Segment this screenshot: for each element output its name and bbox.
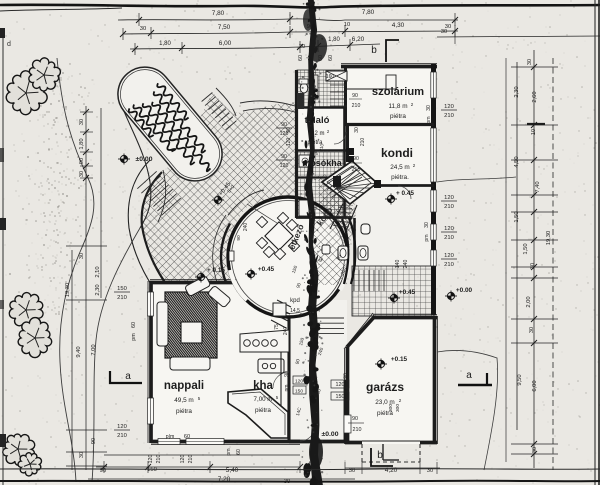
- svg-text:30: 30: [424, 222, 430, 228]
- svg-text:210: 210: [352, 103, 361, 109]
- svg-text:120: 120: [295, 379, 303, 385]
- svg-text:6,20: 6,20: [352, 36, 365, 43]
- svg-text:120: 120: [444, 104, 454, 110]
- svg-text:+ 0.15: + 0.15: [207, 267, 225, 274]
- svg-text:pm: pm: [426, 116, 432, 123]
- svg-text:2,60: 2,60: [532, 91, 538, 102]
- svg-text:2,30: 2,30: [95, 284, 101, 295]
- svg-text:d: d: [7, 41, 11, 48]
- svg-text:+0.45: +0.45: [258, 266, 275, 273]
- svg-text:5,40: 5,40: [226, 467, 239, 474]
- svg-text:160: 160: [326, 74, 335, 80]
- svg-text:150: 150: [295, 389, 303, 395]
- svg-text:210: 210: [360, 138, 366, 147]
- svg-text:7,00 m: 7,00 m: [254, 396, 273, 403]
- svg-text:pm: pm: [424, 234, 430, 241]
- svg-text:nappali: nappali: [164, 380, 204, 392]
- svg-text:30: 30: [527, 59, 533, 65]
- svg-text:b: b: [371, 45, 377, 56]
- svg-text:30: 30: [79, 119, 85, 125]
- svg-text:szolárium: szolárium: [372, 86, 424, 98]
- svg-text:30: 30: [79, 253, 85, 259]
- svg-text:19,30: 19,30: [65, 283, 71, 298]
- svg-text:210: 210: [444, 262, 454, 268]
- svg-text:pm: pm: [131, 333, 137, 341]
- svg-text:±0.00: ±0.00: [136, 156, 153, 163]
- svg-text:1,50: 1,50: [523, 243, 529, 254]
- svg-text:pm: pm: [284, 385, 290, 392]
- svg-text:7,80: 7,80: [212, 10, 225, 17]
- svg-text:300: 300: [395, 404, 401, 412]
- svg-text:90: 90: [236, 235, 242, 241]
- svg-text:75: 75: [274, 324, 280, 330]
- svg-text:10: 10: [531, 129, 537, 135]
- svg-text:120: 120: [444, 195, 454, 201]
- svg-text:120: 120: [444, 253, 454, 259]
- svg-text:9,40: 9,40: [76, 346, 82, 357]
- svg-text:2,00: 2,00: [526, 296, 532, 307]
- svg-text:30: 30: [530, 263, 536, 269]
- svg-text:2,10: 2,10: [95, 266, 101, 277]
- svg-text:30: 30: [79, 452, 85, 458]
- svg-text:1,80: 1,80: [159, 41, 171, 47]
- svg-text:90: 90: [343, 373, 349, 379]
- svg-text:1,80: 1,80: [328, 37, 340, 43]
- svg-text:30: 30: [529, 327, 535, 333]
- svg-text:90: 90: [281, 122, 287, 128]
- svg-text:215: 215: [352, 167, 361, 173]
- svg-text:4,30: 4,30: [392, 22, 405, 29]
- svg-text:140: 140: [395, 260, 401, 269]
- svg-text:b: b: [377, 450, 383, 461]
- svg-text:piétra: piétra: [176, 408, 192, 415]
- svg-text:90: 90: [91, 438, 97, 444]
- svg-text:120: 120: [148, 455, 154, 464]
- svg-text:150: 150: [117, 286, 127, 292]
- svg-text:120: 120: [117, 424, 127, 430]
- svg-text:6,00: 6,00: [219, 40, 232, 47]
- svg-text:90: 90: [353, 156, 359, 162]
- svg-text:piétra: piétra: [390, 113, 406, 120]
- svg-text:210: 210: [156, 455, 162, 464]
- svg-text:210: 210: [188, 455, 194, 464]
- svg-text:9,50: 9,50: [517, 374, 523, 385]
- svg-text:30: 30: [79, 171, 85, 177]
- svg-text:pm: pm: [343, 387, 349, 394]
- svg-text:210: 210: [117, 433, 127, 439]
- svg-text:20: 20: [299, 44, 305, 50]
- svg-text:60: 60: [236, 449, 242, 455]
- svg-text:210: 210: [444, 113, 454, 119]
- svg-text:10: 10: [344, 22, 350, 28]
- svg-text:4,20: 4,20: [385, 467, 398, 474]
- svg-text:210: 210: [353, 427, 362, 433]
- svg-text:150: 150: [147, 467, 157, 473]
- svg-text:7,80: 7,80: [362, 9, 375, 16]
- svg-text:120: 120: [180, 455, 186, 464]
- svg-text:7,00: 7,00: [91, 344, 97, 355]
- svg-text:210: 210: [444, 204, 454, 210]
- svg-text:piétra: piétra: [255, 407, 271, 414]
- svg-text:pm: pm: [226, 448, 232, 455]
- svg-text:piétra.: piétra.: [391, 174, 409, 181]
- svg-text:kpd: kpd: [290, 298, 300, 304]
- svg-text:120: 120: [444, 226, 454, 232]
- svg-text:30: 30: [441, 29, 447, 35]
- svg-text:+0.45: +0.45: [399, 289, 416, 296]
- svg-text:garázs: garázs: [366, 380, 404, 394]
- svg-text:90: 90: [352, 93, 358, 99]
- svg-text:a: a: [466, 370, 472, 381]
- svg-text:14,5: 14,5: [290, 308, 300, 314]
- svg-text:30: 30: [140, 26, 146, 32]
- svg-text:60: 60: [328, 55, 334, 61]
- svg-text:4,50: 4,50: [514, 156, 520, 167]
- svg-text:90: 90: [79, 158, 85, 164]
- svg-text:120: 120: [280, 131, 289, 137]
- svg-text:7,40: 7,40: [535, 181, 541, 192]
- svg-text:a: a: [125, 371, 131, 382]
- svg-text:1,80: 1,80: [79, 138, 85, 149]
- svg-text:±0.00: ±0.00: [322, 431, 339, 438]
- svg-text:240: 240: [283, 327, 289, 336]
- svg-text:120: 120: [280, 163, 289, 169]
- svg-text:240: 240: [243, 223, 249, 232]
- svg-text:30: 30: [426, 105, 432, 111]
- svg-text:+ 0.45: + 0.45: [396, 190, 414, 197]
- svg-text:kondi: kondi: [381, 146, 413, 160]
- svg-text:90: 90: [352, 416, 358, 422]
- svg-text:kha: kha: [253, 380, 273, 392]
- svg-text:240: 240: [403, 260, 409, 269]
- svg-text:30: 30: [354, 127, 360, 133]
- svg-text:210: 210: [444, 235, 454, 241]
- svg-text:11,8 m: 11,8 m: [388, 103, 407, 110]
- svg-text:30: 30: [532, 447, 538, 453]
- svg-text:6,00: 6,00: [532, 380, 538, 391]
- svg-text:+0.00: +0.00: [456, 287, 473, 294]
- svg-text:60: 60: [298, 55, 304, 61]
- svg-text:300: 300: [388, 404, 394, 412]
- svg-text:210: 210: [117, 295, 127, 301]
- svg-text:p|m: p|m: [166, 434, 175, 440]
- svg-text:1,50: 1,50: [514, 211, 520, 222]
- svg-text:19,30: 19,30: [546, 231, 552, 246]
- svg-text:24,5 m: 24,5 m: [390, 164, 410, 171]
- svg-text:7,50: 7,50: [218, 24, 231, 31]
- svg-text:120: 120: [286, 138, 292, 147]
- svg-text:2,30: 2,30: [514, 86, 520, 97]
- svg-text:60: 60: [184, 434, 190, 440]
- svg-text:90: 90: [281, 154, 287, 160]
- svg-text:49,5 m: 49,5 m: [174, 397, 194, 404]
- svg-text:150: 150: [336, 394, 345, 400]
- svg-text:90: 90: [284, 371, 290, 377]
- svg-text:+0.15: +0.15: [391, 356, 408, 363]
- svg-text:60: 60: [131, 322, 137, 328]
